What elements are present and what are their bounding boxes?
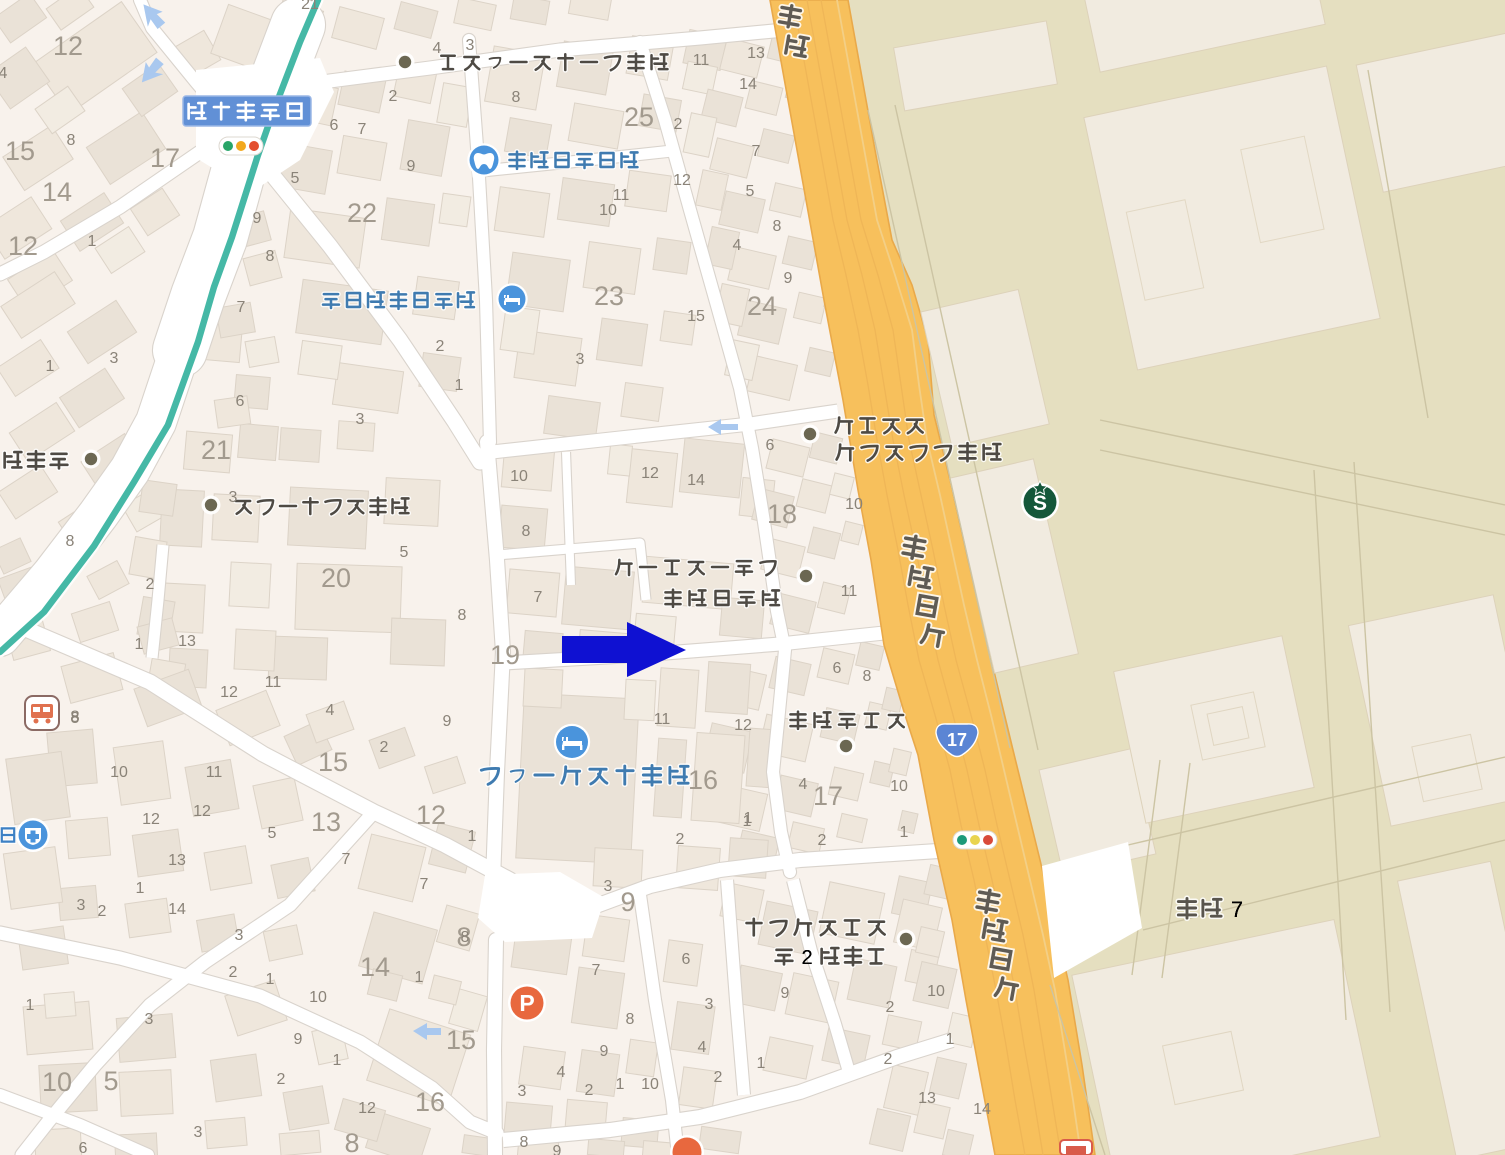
svg-text:12: 12 bbox=[641, 465, 659, 482]
svg-text:2: 2 bbox=[436, 338, 445, 355]
svg-text:1: 1 bbox=[616, 1076, 625, 1093]
svg-text:2: 2 bbox=[714, 1069, 723, 1086]
svg-text:10: 10 bbox=[890, 778, 908, 795]
svg-text:6: 6 bbox=[682, 951, 691, 968]
svg-text:13: 13 bbox=[178, 633, 196, 650]
svg-text:9: 9 bbox=[784, 270, 793, 287]
svg-text:22: 22 bbox=[347, 198, 377, 228]
svg-text:8: 8 bbox=[512, 89, 521, 106]
svg-text:9: 9 bbox=[781, 985, 790, 1002]
svg-text:8: 8 bbox=[458, 607, 467, 624]
svg-text:14: 14 bbox=[973, 1101, 991, 1118]
svg-text:5: 5 bbox=[400, 544, 409, 561]
svg-text:17: 17 bbox=[813, 781, 843, 811]
svg-text:6: 6 bbox=[330, 117, 339, 134]
svg-text:11: 11 bbox=[265, 674, 282, 691]
svg-text:8: 8 bbox=[863, 668, 872, 685]
svg-text:5: 5 bbox=[103, 1066, 118, 1096]
svg-text:3: 3 bbox=[194, 1124, 203, 1141]
svg-text:15: 15 bbox=[446, 1025, 476, 1055]
svg-text:3: 3 bbox=[356, 411, 365, 428]
svg-text:11: 11 bbox=[841, 583, 858, 600]
svg-text:12: 12 bbox=[8, 231, 38, 261]
svg-text:15: 15 bbox=[687, 308, 705, 325]
svg-text:8: 8 bbox=[344, 1128, 359, 1155]
svg-text:8: 8 bbox=[66, 533, 75, 550]
svg-text:16: 16 bbox=[688, 765, 718, 795]
svg-text:9: 9 bbox=[600, 1043, 609, 1060]
svg-text:3: 3 bbox=[229, 489, 238, 506]
svg-text:14: 14 bbox=[739, 76, 757, 93]
svg-text:1: 1 bbox=[266, 971, 275, 988]
svg-text:4: 4 bbox=[698, 1039, 707, 1056]
svg-text:15: 15 bbox=[318, 747, 348, 777]
svg-text:8: 8 bbox=[522, 523, 531, 540]
svg-text:1: 1 bbox=[900, 824, 909, 841]
svg-text:3: 3 bbox=[235, 927, 244, 944]
svg-text:1: 1 bbox=[135, 636, 144, 653]
svg-text:9: 9 bbox=[294, 1031, 303, 1048]
svg-text:10: 10 bbox=[845, 496, 863, 513]
svg-text:7: 7 bbox=[420, 876, 429, 893]
svg-text:8: 8 bbox=[461, 929, 470, 946]
svg-text:15: 15 bbox=[5, 136, 35, 166]
svg-text:8: 8 bbox=[266, 248, 275, 265]
svg-text:1: 1 bbox=[468, 828, 477, 845]
svg-text:1: 1 bbox=[757, 1055, 766, 1072]
svg-text:8: 8 bbox=[626, 1011, 635, 1028]
svg-text:P: P bbox=[519, 990, 534, 1016]
svg-text:2: 2 bbox=[585, 1082, 594, 1099]
svg-text:6: 6 bbox=[833, 660, 842, 677]
svg-text:12: 12 bbox=[734, 717, 752, 734]
svg-text:2: 2 bbox=[98, 903, 107, 920]
svg-text:8: 8 bbox=[71, 710, 80, 727]
svg-text:12: 12 bbox=[358, 1100, 376, 1117]
svg-text:4: 4 bbox=[799, 776, 808, 793]
svg-text:2: 2 bbox=[676, 831, 685, 848]
svg-text:24: 24 bbox=[747, 291, 777, 321]
svg-text:1: 1 bbox=[26, 997, 35, 1014]
svg-text:13: 13 bbox=[311, 807, 341, 837]
svg-text:13: 13 bbox=[918, 1090, 936, 1107]
svg-text:17: 17 bbox=[947, 730, 967, 750]
svg-text:11: 11 bbox=[654, 711, 671, 728]
svg-text:12: 12 bbox=[142, 811, 160, 828]
svg-text:1: 1 bbox=[743, 813, 752, 830]
svg-text:9: 9 bbox=[253, 210, 262, 227]
svg-text:14: 14 bbox=[168, 901, 186, 918]
svg-text:2: 2 bbox=[229, 964, 238, 981]
svg-text:8: 8 bbox=[520, 1134, 529, 1151]
svg-text:S: S bbox=[1033, 492, 1047, 515]
svg-text:7: 7 bbox=[534, 589, 543, 606]
svg-text:3: 3 bbox=[77, 897, 86, 914]
svg-text:21: 21 bbox=[201, 435, 231, 465]
svg-text:11: 11 bbox=[693, 52, 710, 69]
svg-text:4: 4 bbox=[433, 40, 442, 57]
svg-text:5: 5 bbox=[268, 825, 277, 842]
svg-text:10: 10 bbox=[599, 202, 617, 219]
svg-text:4: 4 bbox=[557, 1064, 566, 1081]
svg-text:2: 2 bbox=[380, 739, 389, 756]
svg-text:9: 9 bbox=[553, 1143, 562, 1155]
svg-text:1: 1 bbox=[136, 880, 145, 897]
svg-text:12: 12 bbox=[673, 172, 691, 189]
svg-text:1: 1 bbox=[946, 1031, 955, 1048]
svg-text:13: 13 bbox=[747, 45, 765, 62]
svg-text:9: 9 bbox=[620, 887, 635, 917]
svg-text:6: 6 bbox=[236, 393, 245, 410]
svg-text:3: 3 bbox=[466, 37, 475, 54]
svg-text:10: 10 bbox=[110, 764, 128, 781]
svg-text:1: 1 bbox=[333, 1052, 342, 1069]
svg-text:20: 20 bbox=[321, 563, 351, 593]
svg-text:25: 25 bbox=[624, 102, 654, 132]
svg-text:3: 3 bbox=[705, 996, 714, 1013]
svg-text:10: 10 bbox=[42, 1067, 72, 1097]
svg-text:14: 14 bbox=[687, 472, 705, 489]
svg-text:18: 18 bbox=[767, 499, 797, 529]
svg-text:10: 10 bbox=[309, 989, 327, 1006]
svg-text:1: 1 bbox=[455, 377, 464, 394]
svg-text:1: 1 bbox=[88, 233, 97, 250]
svg-text:17: 17 bbox=[150, 143, 180, 173]
svg-text:1: 1 bbox=[415, 969, 424, 986]
svg-text:2: 2 bbox=[674, 116, 683, 133]
svg-text:4: 4 bbox=[0, 65, 8, 82]
svg-text:2: 2 bbox=[818, 832, 827, 849]
svg-text:3: 3 bbox=[145, 1011, 154, 1028]
svg-text:11: 11 bbox=[206, 764, 223, 781]
svg-text:19: 19 bbox=[490, 640, 520, 670]
svg-text:8: 8 bbox=[67, 132, 76, 149]
svg-text:3: 3 bbox=[110, 350, 119, 367]
svg-text:16: 16 bbox=[415, 1087, 445, 1117]
svg-text:9: 9 bbox=[443, 713, 452, 730]
svg-text:7: 7 bbox=[592, 962, 601, 979]
svg-text:5: 5 bbox=[291, 170, 300, 187]
svg-text:2: 2 bbox=[886, 999, 895, 1016]
svg-text:2: 2 bbox=[146, 576, 155, 593]
svg-text:3: 3 bbox=[576, 351, 585, 368]
svg-text:7: 7 bbox=[237, 299, 246, 316]
svg-text:2: 2 bbox=[884, 1051, 893, 1068]
svg-text:8: 8 bbox=[773, 218, 782, 235]
svg-text:12: 12 bbox=[220, 684, 238, 701]
svg-text:6: 6 bbox=[79, 1140, 88, 1155]
svg-text:12: 12 bbox=[193, 803, 211, 820]
svg-text:14: 14 bbox=[42, 177, 72, 207]
svg-text:2: 2 bbox=[277, 1071, 286, 1088]
svg-text:4: 4 bbox=[326, 702, 335, 719]
svg-text:13: 13 bbox=[168, 852, 186, 869]
svg-text:12: 12 bbox=[53, 31, 83, 61]
svg-text:4: 4 bbox=[733, 237, 742, 254]
svg-text:10: 10 bbox=[641, 1076, 659, 1093]
svg-text:5: 5 bbox=[746, 183, 755, 200]
svg-text:7: 7 bbox=[342, 851, 351, 868]
svg-text:2: 2 bbox=[389, 88, 398, 105]
svg-text:23: 23 bbox=[594, 281, 624, 311]
svg-text:7: 7 bbox=[752, 143, 761, 160]
svg-text:1: 1 bbox=[46, 358, 55, 375]
svg-text:9: 9 bbox=[407, 158, 416, 175]
svg-text:7: 7 bbox=[358, 121, 367, 138]
svg-text:10: 10 bbox=[927, 983, 945, 1000]
svg-text:21: 21 bbox=[301, 0, 319, 13]
svg-text:3: 3 bbox=[604, 878, 613, 895]
svg-text:14: 14 bbox=[360, 952, 390, 982]
svg-text:3: 3 bbox=[518, 1083, 527, 1100]
svg-text:6: 6 bbox=[766, 437, 775, 454]
svg-text:12: 12 bbox=[416, 800, 446, 830]
svg-text:10: 10 bbox=[510, 468, 528, 485]
